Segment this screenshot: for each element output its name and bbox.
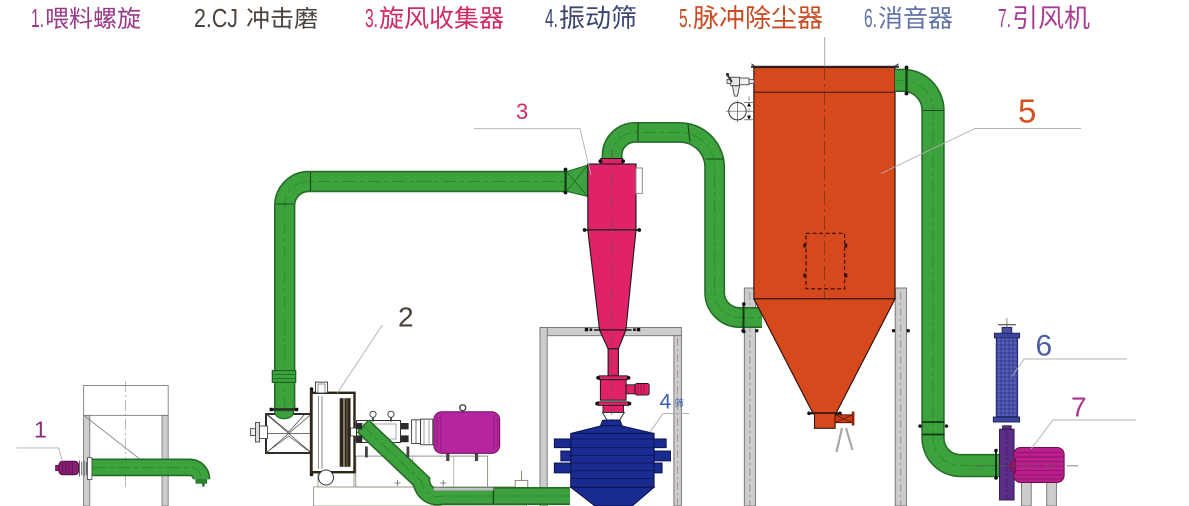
- svg-text:5: 5: [1018, 93, 1036, 130]
- svg-text:3.: 3.: [365, 3, 378, 33]
- svg-text:2.CJ: 2.CJ: [194, 3, 238, 33]
- svg-text:4: 4: [660, 391, 672, 414]
- svg-text:6.: 6.: [864, 3, 877, 33]
- svg-text:7.: 7.: [998, 3, 1011, 33]
- svg-text:6: 6: [1036, 330, 1053, 363]
- svg-text:7: 7: [1071, 392, 1087, 423]
- svg-text:2: 2: [398, 302, 414, 333]
- svg-text:4.: 4.: [545, 3, 558, 33]
- svg-text:1.: 1.: [31, 3, 44, 33]
- svg-text:3: 3: [516, 99, 528, 124]
- svg-text:1: 1: [34, 417, 47, 443]
- svg-text:5.: 5.: [679, 3, 692, 33]
